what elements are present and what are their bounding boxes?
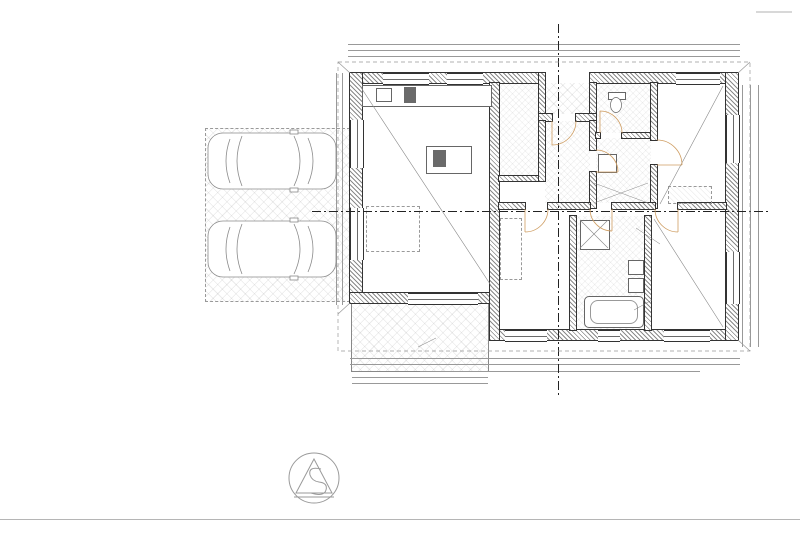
wall-porch-rear-b [576,114,596,121]
floor-zadverie [545,121,590,203]
washbasin [628,278,644,293]
washbasin [628,260,644,275]
terrace-paving [352,303,488,371]
floor-komora [499,83,539,176]
wardrobe [500,218,522,280]
window [726,252,740,304]
drawing-sheet [0,0,800,540]
window [726,115,740,163]
dining-table [366,206,420,252]
kitchen-hob [404,87,416,103]
sheet-border-bottom [0,519,800,520]
window [383,73,429,85]
wall-wing-top-c [612,203,655,209]
wc-cistern [608,92,626,100]
window [676,73,720,85]
wall-107-108 [645,216,651,330]
wall-wing-top-b [548,203,590,209]
window [350,120,364,168]
island-hob [433,150,446,167]
shower [580,220,610,250]
wall-106-107 [570,216,576,330]
legend-materials [22,10,254,17]
wall-109-left-a [651,83,657,140]
driveway-paving [205,128,350,302]
wall-corridor-b [590,172,596,208]
section-line-B [312,211,768,212]
wall-wing-top-a [499,203,525,209]
window [350,208,364,260]
diagonal-living [360,86,494,290]
window [598,330,620,342]
wall-109-left-b [651,165,657,208]
bathtub-inner [590,300,638,324]
window [664,330,710,342]
attic-hatch [668,186,712,204]
wall-komora-right [539,121,545,181]
wall-komora-bottom [499,176,539,181]
porch-paving [545,83,590,114]
window [505,330,547,342]
wall-left [350,73,362,303]
diagonal-izba-108 [654,219,723,327]
window [447,73,483,85]
floor-wc [596,83,651,133]
logo [289,453,339,503]
wall-wc-tm-a [596,133,600,138]
wall-porch-rear-a [539,114,552,121]
terrace-door [408,293,478,305]
kitchen-sink [376,88,392,102]
wall-wc-tm-b [622,133,651,138]
washing-machine [598,154,617,173]
